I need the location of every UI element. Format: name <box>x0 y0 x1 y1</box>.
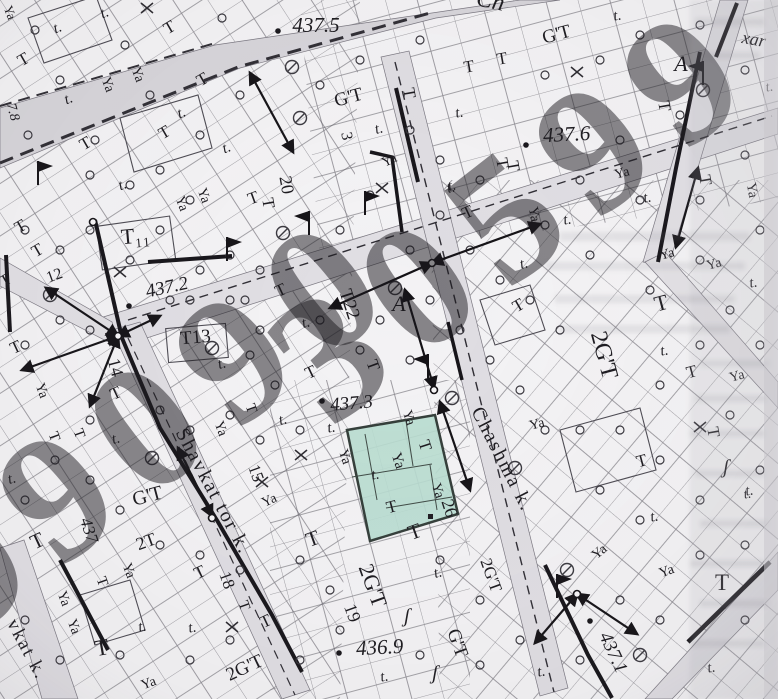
map-viewport[interactable]: Yat.t.TTYaYaTt.t.TTt.t.YaTTT12YaTT₁₁T13T… <box>0 0 778 699</box>
scan-vignette <box>0 0 778 699</box>
scan-edge-shadow <box>764 0 778 699</box>
cadastral-map-scan: Yat.t.TTYaYaTt.t.TTt.t.YaTTT12YaTT₁₁T13T… <box>0 0 778 699</box>
